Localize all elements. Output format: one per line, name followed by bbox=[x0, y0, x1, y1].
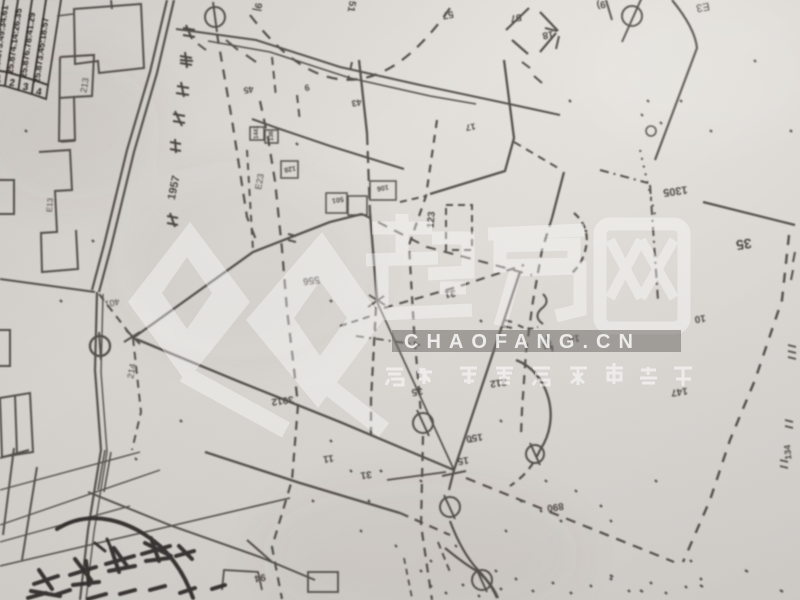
svg-text:43: 43 bbox=[351, 97, 363, 109]
svg-text:45: 45 bbox=[243, 84, 255, 96]
svg-text:15: 15 bbox=[456, 454, 469, 467]
svg-text:CHAOFANG.CN: CHAOFANG.CN bbox=[404, 331, 641, 353]
svg-text:134: 134 bbox=[782, 444, 793, 460]
svg-text:17: 17 bbox=[465, 121, 477, 133]
svg-text:94: 94 bbox=[253, 571, 266, 584]
svg-text:E13: E13 bbox=[45, 197, 55, 213]
svg-text:10: 10 bbox=[693, 312, 706, 325]
svg-text:11: 11 bbox=[322, 452, 334, 464]
svg-text:35: 35 bbox=[410, 385, 423, 398]
svg-text:1441: 1441 bbox=[254, 125, 260, 139]
svg-text:35: 35 bbox=[735, 235, 753, 253]
svg-text:31: 31 bbox=[359, 468, 372, 481]
svg-text:136: 136 bbox=[269, 130, 275, 141]
